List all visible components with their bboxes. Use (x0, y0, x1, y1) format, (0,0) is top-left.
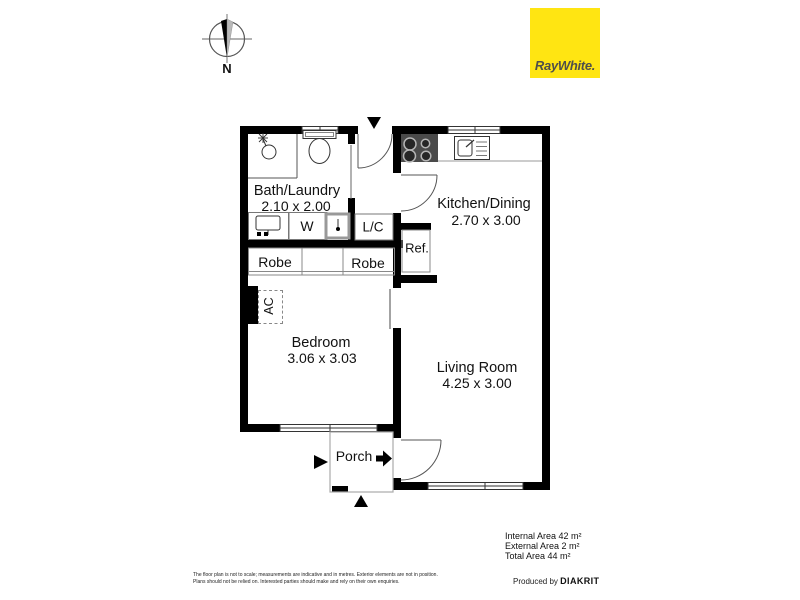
entry-arrow-top (367, 117, 381, 129)
wall-segment (401, 223, 431, 230)
room-dims-kitchen: 2.70 x 3.00 (451, 213, 520, 227)
entry-door-arc (358, 134, 392, 168)
label-robe-2: Robe (351, 256, 384, 270)
wall-segment (240, 126, 248, 432)
porch-label-arrow (376, 451, 392, 467)
wall-segment (240, 240, 403, 248)
porch-door-arc (401, 440, 441, 480)
entry-arrow-porch-left (314, 455, 328, 469)
compass-north-label: N (213, 61, 241, 76)
room-label-kitchen: Kitchen/Dining (437, 197, 531, 212)
room-dims-bath: 2.10 x 2.00 (261, 199, 330, 213)
wall-segment (542, 126, 550, 490)
wall-segment (393, 134, 401, 173)
label-ac: AC (263, 297, 276, 314)
wall-segment (348, 134, 355, 144)
kitchen-sink-icon (455, 137, 490, 160)
toilet-icon (303, 131, 336, 164)
wall-segment (523, 482, 550, 490)
wall-segment (393, 275, 437, 283)
laundry-tub-icon (326, 214, 349, 238)
window (280, 127, 523, 490)
room-dims-living: 4.25 x 3.00 (442, 376, 511, 390)
area-summary: Internal Area 42 m² External Area 2 m² T… (505, 531, 582, 561)
wall-segment (393, 478, 401, 490)
floorplan-page: N RayWhite. (0, 0, 800, 600)
internal-area: Internal Area 42 m² (505, 531, 582, 541)
room-label-porch: Porch (336, 449, 373, 463)
room-label-living: Living Room (437, 361, 518, 376)
raywhite-logo-text: RayWhite. (530, 58, 600, 73)
label-robe-1: Robe (258, 255, 291, 269)
wall-segment (392, 126, 448, 134)
credit-brand: DIAKRIT (560, 576, 599, 586)
raywhite-logo: RayWhite. (530, 8, 600, 78)
label-washer: W (300, 219, 313, 233)
shower-icon (248, 133, 297, 178)
label-fridge: Ref. (405, 242, 429, 255)
cooktop-icon (401, 134, 438, 162)
entry-arrow-porch-bottom (354, 495, 368, 507)
wall-segment (338, 126, 358, 134)
room-label-bath: Bath/Laundry (254, 184, 340, 199)
room-dims-bedroom: 3.06 x 3.03 (287, 351, 356, 365)
producer-credit: Produced by DIAKRIT (513, 576, 599, 586)
wall-segment (240, 424, 280, 432)
wall-segment (240, 126, 302, 134)
vanity-icon (249, 213, 289, 240)
plan-linework (0, 0, 800, 600)
porch-step (332, 486, 348, 492)
disclaimer: The floor plan is not to scale; measurem… (193, 572, 438, 586)
kitchen-door-arc (401, 175, 437, 211)
disclaimer-line-1: The floor plan is not to scale; measurem… (193, 572, 438, 579)
wall-notch (535, 270, 542, 279)
ac-unit-block (248, 286, 258, 324)
credit-prefix: Produced by (513, 577, 558, 586)
external-area: External Area 2 m² (505, 541, 582, 551)
disclaimer-line-2: Plans should not be relied on. Intereste… (193, 579, 438, 586)
wall-segment (393, 328, 401, 438)
room-label-bedroom: Bedroom (292, 336, 351, 351)
total-area: Total Area 44 m² (505, 551, 582, 561)
label-linen: L/C (362, 220, 383, 234)
